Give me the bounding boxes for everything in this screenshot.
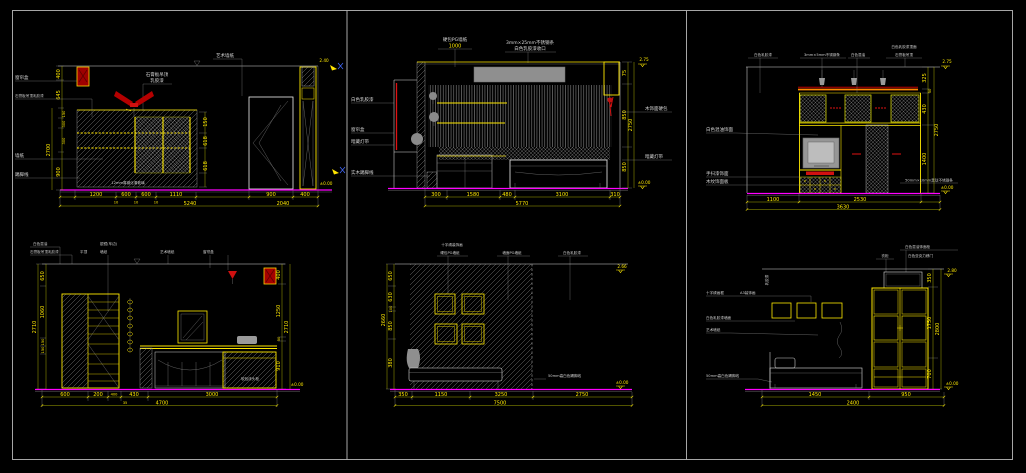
note-label: 窗帘盒 — [15, 74, 29, 81]
drawing-geometry — [302, 67, 314, 86]
elevation-panel-6: 衣柜 白色混油饰面柜 白色亚克力移门 乳胶漆 2.80 十字绣画框 A3装饰画 … — [706, 244, 959, 407]
drawing-geometry — [822, 303, 842, 318]
note-label: 石膏板吊顶 — [146, 71, 169, 78]
dim-label: 950 — [901, 392, 911, 398]
door-elevation — [249, 97, 293, 189]
dim-label: 1250 — [276, 305, 282, 318]
dim-label: 3000 — [206, 392, 219, 398]
elevation-panel-3: 50mm×10mm黑钛不锈钢条 白色混油饰面 手扫漆饰面 木纹饰面板 白色乳胶漆… — [706, 44, 958, 211]
drawing-geometry — [770, 368, 862, 388]
note-label: 平顶 — [80, 249, 88, 254]
dim-label: 2710 — [32, 321, 38, 334]
wall-art-red-panel — [264, 268, 276, 284]
dim-label: 310 — [610, 192, 620, 198]
dim-label: 300 — [431, 192, 441, 198]
bed-side-hatch — [140, 348, 152, 388]
picture-frames — [772, 303, 842, 318]
drawing-geometry — [303, 101, 313, 186]
dim-label: 2710 — [284, 321, 290, 334]
drawing-geometry — [834, 188, 835, 189]
note-label: 白色混油饰面柜 — [905, 244, 931, 249]
dim-label: 618 — [203, 136, 209, 146]
note-label: 白色混油 — [851, 52, 866, 57]
dim-label: 430 — [922, 104, 928, 114]
note-label: 白色乳胶漆顶面 — [891, 44, 917, 49]
dim-label: 630 — [388, 292, 394, 302]
drawing-geometry — [944, 387, 953, 390]
dim-label: 850 — [622, 162, 628, 172]
drawing-geometry — [804, 180, 805, 181]
drawing-geometry — [746, 67, 940, 193]
drawing-geometry — [253, 101, 288, 185]
drawing-geometry — [407, 349, 420, 368]
dim-label: 400 — [111, 392, 119, 396]
note-label: 暗藏灯带 — [645, 153, 663, 160]
hatched-pier — [866, 125, 888, 193]
tv-unit — [800, 125, 841, 193]
level-label: ±0.00 — [616, 380, 629, 385]
drawing-geometry — [338, 63, 343, 69]
drawing-geometry — [616, 270, 625, 273]
wardrobe-cornice — [884, 272, 922, 288]
drawing-geometry — [155, 360, 225, 386]
dim-label: 400 — [300, 192, 310, 198]
level-label: ±0.00 — [638, 180, 651, 185]
dim-label: 1750 — [927, 317, 933, 330]
dim-label: 650 — [388, 271, 394, 281]
note-label: 墙纸 — [15, 152, 24, 159]
dim-label: 300 — [62, 137, 66, 145]
elevation-panel-2: 白色乳胶漆 窗帘盒 暗藏灯带 实木踢脚线 硬包PG墙纸 1000 3mm×25m… — [351, 36, 672, 207]
drawing-geometry — [748, 58, 778, 93]
drawing-geometry — [140, 346, 277, 349]
dim-label: 50 — [277, 336, 281, 341]
drawing-geometry — [394, 80, 417, 188]
note-label: 墙面PG墙纸 — [502, 250, 522, 255]
dim-label: 150 — [62, 110, 66, 118]
cad-drawing-sheet: 艺术墙纸 石膏板吊顶 乳胶漆 12mm厚钢化清玻璃 150 618 618 — [0, 0, 1026, 473]
floor-lamp — [128, 298, 133, 352]
note-label: 白色乳胶漆收口 — [514, 45, 546, 52]
dim-label: 5240 — [184, 201, 197, 207]
note-label: 踢脚线 — [15, 171, 29, 178]
note-label: 艺术墙纸 — [216, 52, 234, 59]
drawing-geometry — [706, 133, 818, 135]
drawing-geometry — [228, 271, 237, 279]
wall-column-hatch — [417, 62, 425, 188]
dim-label: 2660 — [381, 314, 387, 327]
dim-label: 2750 — [934, 124, 940, 137]
level-label: 2.75 — [942, 59, 952, 64]
dim-label: 3250 — [495, 392, 508, 398]
dim-label: 1450 — [809, 392, 822, 398]
drawing-geometry — [706, 379, 772, 382]
dim-label: 200 — [93, 392, 103, 398]
dim-label: 850 — [388, 321, 394, 331]
drawing-geometry — [902, 369, 926, 387]
drawing-geometry — [427, 172, 437, 188]
drawing-geometry — [814, 188, 815, 189]
dim-label: 1060 — [40, 306, 46, 319]
drawing-geometry — [819, 78, 886, 85]
dim-label: 600 — [141, 192, 151, 198]
note-label: 乳胶漆 — [150, 77, 164, 84]
drawing-geometry — [302, 88, 314, 99]
spotlights — [819, 70, 886, 85]
elevation-panel-5: 十字绣装饰画 硬包PG墙纸 墙面PG墙纸 白色乳胶漆 650 630 100 8… — [381, 242, 633, 407]
dim-label: 430 — [129, 392, 139, 398]
drawing-geometry — [941, 191, 950, 194]
note-label: 50mm高白色踢脚线 — [706, 373, 740, 378]
note-label: 艺术墙纸 — [706, 327, 721, 332]
drawing-geometry — [616, 386, 625, 389]
note-label: 3mm×25mm不锈钢条 — [506, 39, 554, 46]
drawing-geometry — [775, 358, 795, 368]
note-label: 石膏板吊顶乳胶漆 — [30, 249, 59, 254]
note-label: 十字绣画框 — [706, 290, 724, 295]
drawing-geometry — [88, 302, 119, 381]
wall-lamp — [228, 271, 237, 284]
bed-elevation — [510, 160, 607, 188]
dim-label: 10 — [154, 201, 159, 205]
drawing-geometry — [510, 166, 607, 188]
elevation-panel-1: 艺术墙纸 石膏板吊顶 乳胶漆 12mm厚钢化清玻璃 150 618 618 — [15, 52, 345, 207]
drawing-geometry — [902, 342, 926, 367]
note-label: 手扫漆饰面 — [706, 170, 729, 177]
level-label: 2.40 — [319, 58, 329, 63]
drawing-geometry — [213, 59, 242, 96]
dim-label: 645 — [56, 90, 62, 100]
dim-label: 3100 — [556, 192, 569, 198]
pillow — [237, 336, 257, 344]
drawing-geometry — [429, 92, 437, 100]
note-label: 12mm厚钢化清玻璃 — [111, 180, 145, 185]
upper-hatch-panels — [800, 95, 919, 122]
dim-label: 1150 — [435, 392, 448, 398]
drawing-geometry — [332, 169, 339, 175]
dim-label: 50 — [928, 88, 932, 93]
dim-label: 2750 — [576, 392, 589, 398]
dim-label: 2800 — [935, 323, 941, 336]
drawing-geometry — [706, 296, 811, 302]
note-label: 白色乳胶漆 — [563, 250, 581, 255]
dim-label: 325 — [922, 73, 928, 83]
note-label: 白色乳胶漆 — [754, 52, 772, 57]
dim-label: 1200 — [90, 192, 103, 198]
note-label: 白色乳胶漆 — [351, 96, 374, 103]
wainscot-band — [439, 147, 610, 160]
note-label: 白色混油饰面 — [706, 126, 733, 133]
drawing-geometry — [902, 316, 926, 340]
dim-label: 400 — [56, 69, 62, 79]
note-label: 窗帘盒 — [203, 249, 214, 254]
note-label: 硬包PG墙纸 — [440, 250, 460, 255]
note-label: A3装饰画 — [740, 290, 756, 295]
drawing-geometry — [902, 290, 926, 314]
note-label: 石膏板吊顶 — [895, 52, 913, 57]
dim-label: 150 — [203, 117, 209, 127]
level-label: 2.75 — [639, 57, 649, 62]
note-label: 墙纸 — [100, 249, 108, 254]
drawing-geometry — [134, 259, 140, 264]
dim-label: 5770 — [516, 201, 529, 207]
note-label: 硬包PG墙纸 — [443, 36, 468, 43]
drawing-geometry — [638, 186, 647, 189]
note-label: 银镜(车边) — [100, 241, 118, 246]
dim-label: 1400 — [922, 153, 928, 166]
note-label: 白色亚克力移门 — [908, 253, 934, 258]
dim-label: 400 — [276, 270, 282, 280]
drawing-geometry — [30, 247, 228, 311]
drawing-geometry — [130, 103, 138, 107]
drawing-geometry — [874, 290, 898, 314]
dressing-stool — [155, 352, 225, 388]
drawing-geometry — [409, 368, 502, 381]
drawing-geometry — [330, 65, 337, 71]
drawing-geometry — [884, 272, 922, 288]
level-label: ±0.00 — [291, 382, 304, 387]
column-with-cross-brace — [300, 67, 316, 189]
dim-label: 910 — [276, 361, 282, 371]
dim-label: 900 — [56, 167, 62, 177]
curtain-box — [394, 80, 417, 188]
drawing-geometry — [874, 316, 898, 340]
drawing-geometry — [891, 95, 919, 122]
drawing-geometry — [638, 64, 647, 67]
dim-label: 300 — [62, 120, 66, 128]
drawing-svg: 艺术墙纸 石膏板吊顶 乳胶漆 12mm厚钢化清玻璃 150 618 618 — [0, 0, 1026, 473]
note-label: 暗藏灯带 — [351, 138, 369, 145]
level-label: ±0.00 — [946, 381, 959, 386]
dim-label: 700 — [927, 369, 933, 379]
drawing-geometry — [808, 142, 834, 163]
dim-label: 600 — [121, 192, 131, 198]
dim-label: 3630 — [837, 204, 850, 210]
note-label: 白色混油 — [33, 241, 48, 246]
dim-label: 380 — [388, 358, 394, 368]
level-label: 2.66 — [617, 264, 627, 269]
drawing-geometry — [800, 95, 826, 122]
dim-label: 1580 — [467, 192, 480, 198]
louvered-wardrobe — [872, 288, 928, 389]
note-label: 木饰面硬包 — [645, 105, 668, 112]
dim-label: 1110 — [170, 192, 183, 198]
note-label: 白色乳胶漆墙面 — [706, 315, 732, 320]
drawing-geometry — [876, 259, 894, 272]
dim-label: 2040 — [277, 201, 290, 207]
dim-label: 2530 — [854, 197, 867, 203]
dim-label: 2400 — [847, 400, 860, 406]
drawing-geometry — [340, 167, 345, 173]
note-label: 艺术墙纸 — [160, 249, 175, 254]
drawing-geometry — [824, 180, 825, 181]
drawing-geometry — [706, 333, 818, 335]
note-label: 石膏板吊顶乳胶漆 — [15, 93, 44, 98]
dim-label: 618 — [203, 161, 209, 171]
dim-label: 4700 — [156, 400, 169, 406]
level-label: ±0.00 — [320, 181, 333, 186]
note-label: 窗帘盒 — [351, 126, 365, 133]
drawing-geometry — [505, 52, 556, 63]
drawing-geometry — [223, 352, 276, 388]
drawing-geometry — [886, 58, 922, 67]
drawing-geometry — [886, 274, 920, 286]
drawing-geometry — [608, 98, 613, 103]
drawing-geometry — [797, 303, 816, 318]
note-label: 50mm×10mm黑钛不锈钢条 — [905, 178, 953, 183]
dim-label: 10 — [134, 201, 139, 205]
drawing-geometry — [395, 397, 632, 406]
bedside-cabinet: 软包床头柜 — [223, 352, 276, 388]
dim-label: 350 — [398, 392, 408, 398]
dim-label: 1000 — [449, 44, 462, 50]
dim-label: 150 — [41, 338, 45, 346]
dim-label: 900 — [266, 192, 276, 198]
dim-label: 600 — [60, 392, 70, 398]
drawing-geometry — [799, 123, 921, 126]
drawing-geometry — [874, 342, 898, 367]
drawing-geometry — [944, 274, 953, 277]
dim-label: 850 — [622, 110, 628, 120]
drawing-geometry — [941, 66, 950, 69]
drawing-geometry — [394, 396, 633, 407]
drawing-geometry — [194, 61, 200, 66]
ceiling-recess — [474, 67, 565, 82]
dim-label: 35 — [123, 401, 128, 405]
level-target-symbol — [330, 63, 345, 175]
elevation-panel-4: 白色混油 银镜(车边) 石膏板吊顶乳胶漆 平顶 墙纸 艺术墙纸 窗帘盒 650 … — [30, 241, 304, 407]
dim-label: 2750 — [628, 119, 634, 132]
dim-label: 100 — [389, 305, 393, 313]
drawing-geometry — [429, 112, 439, 122]
note-label: 木纹饰面板 — [706, 178, 729, 185]
drawing-geometry — [438, 49, 472, 67]
drawing-geometry — [806, 172, 834, 176]
note-label: 实木踢脚线 — [351, 169, 374, 176]
note-label: 衣柜 — [881, 253, 889, 258]
drawing-geometry — [845, 95, 871, 122]
slatted-feature-wall — [428, 85, 612, 147]
note-label: 乳胶漆 — [764, 274, 769, 285]
note-label: 50mm高白色踢脚线 — [548, 373, 582, 378]
dim-label: 480 — [502, 192, 512, 198]
wardrobe — [62, 294, 119, 388]
dim-label: 75 — [622, 70, 628, 76]
drawing-geometry — [183, 316, 203, 340]
dim-label: 150 — [41, 346, 45, 354]
level-label: ±0.00 — [941, 185, 954, 190]
note-label: 3mm×5mm不锈钢条 — [804, 52, 840, 57]
note-label: 十字绣装饰画 — [441, 242, 463, 247]
drawing-geometry — [772, 303, 791, 318]
mirror — [178, 311, 207, 343]
drawing-geometry — [411, 133, 423, 145]
note-label: 软包床头柜 — [241, 376, 259, 381]
drawing-geometry — [249, 97, 293, 189]
dim-label: 1100 — [767, 197, 780, 203]
drawing-geometry — [822, 70, 883, 78]
hatched-wall: 12mm厚钢化清玻璃 — [77, 110, 197, 187]
drawing-geometry — [62, 294, 88, 388]
drawing-geometry — [38, 264, 46, 389]
dim-label: 350 — [927, 273, 933, 283]
dim-label: 7500 — [494, 400, 507, 406]
drawing-geometry — [770, 373, 862, 388]
wall-art-red-panel — [77, 67, 89, 86]
dim-label: 2700 — [46, 144, 52, 157]
bed-side-view — [770, 352, 862, 389]
drawing-geometry — [874, 369, 898, 387]
drawing-geometry — [837, 322, 842, 358]
drawing-geometry — [510, 160, 607, 188]
level-label: 2.80 — [947, 268, 957, 273]
dim-label: 650 — [40, 271, 46, 281]
dim-label: 10 — [114, 201, 119, 205]
